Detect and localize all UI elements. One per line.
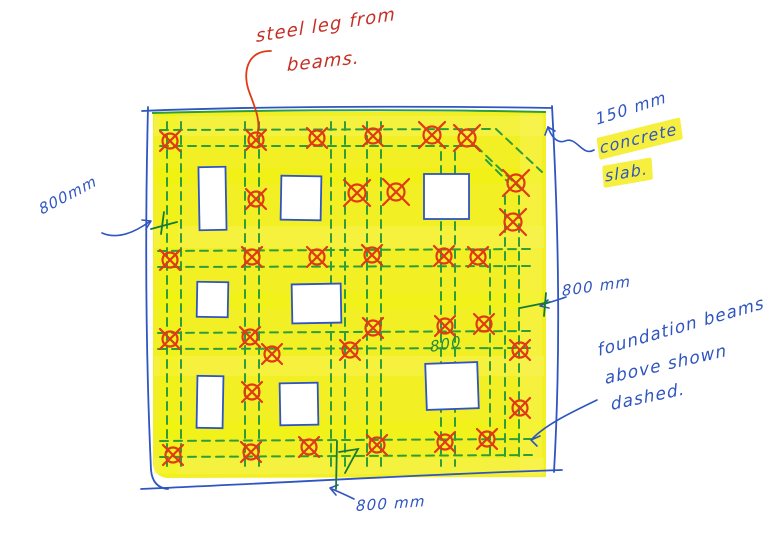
steel-leg-marker [307,128,327,148]
steel-leg-marker [160,250,180,270]
steel-leg-marker [160,131,180,151]
steel-leg-marker [344,180,370,206]
steel-leg-marker [262,344,282,364]
steel-leg-marker [340,340,360,360]
steel-leg-marker [503,170,529,196]
steel-leg-marker [240,327,260,347]
steel-leg-marker [362,245,382,265]
steel-leg-marker [242,247,262,267]
steel-leg-marker [435,432,455,452]
scanned-sketch-page: steel leg from beams. 150 mm concrete sl… [0,0,773,539]
steel-leg-marker [363,126,383,146]
slab-opening [292,284,342,324]
foundation-plan-sketch [0,0,773,539]
steel-leg-marker [510,398,530,418]
steel-leg-marker [242,382,262,402]
steel-leg-marker [307,247,327,267]
slab-opening [425,362,479,410]
steel-leg-marker [510,340,530,360]
steel-leg-marker [241,442,261,462]
slab-opening [280,383,319,426]
steel-leg-marker [363,318,383,338]
steel-leg-marker [419,122,445,148]
steel-leg-marker [468,247,488,267]
steel-leg-marker [477,429,497,449]
steel-leg-marker [367,435,387,455]
slab-opening [198,167,226,230]
steel-leg-marker [246,189,266,209]
slab-opening [197,376,224,428]
steel-leg-marker [474,314,494,334]
foundation-beam-line [160,129,496,130]
slab-opening [281,176,322,221]
steel-leg-marker [500,209,526,235]
steel-leg-marker [163,445,183,465]
steel-leg-marker [383,179,409,205]
steel-leg-marker [246,130,266,150]
steel-leg-marker [434,246,454,266]
slab-opening [197,282,229,318]
steel-leg-marker [160,329,180,349]
slab-opening [424,174,469,219]
steel-leg-marker [454,125,480,151]
steel-leg-marker [299,437,319,457]
